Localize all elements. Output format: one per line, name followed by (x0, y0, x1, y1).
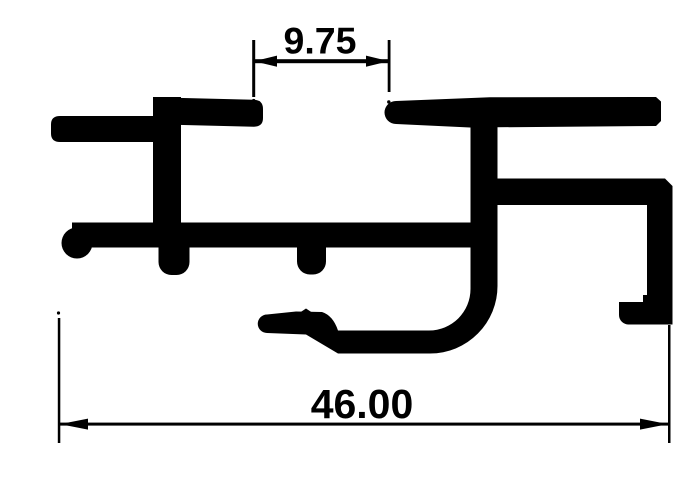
svg-text:9.75: 9.75 (284, 19, 357, 61)
svg-text:46.00: 46.00 (311, 381, 414, 427)
